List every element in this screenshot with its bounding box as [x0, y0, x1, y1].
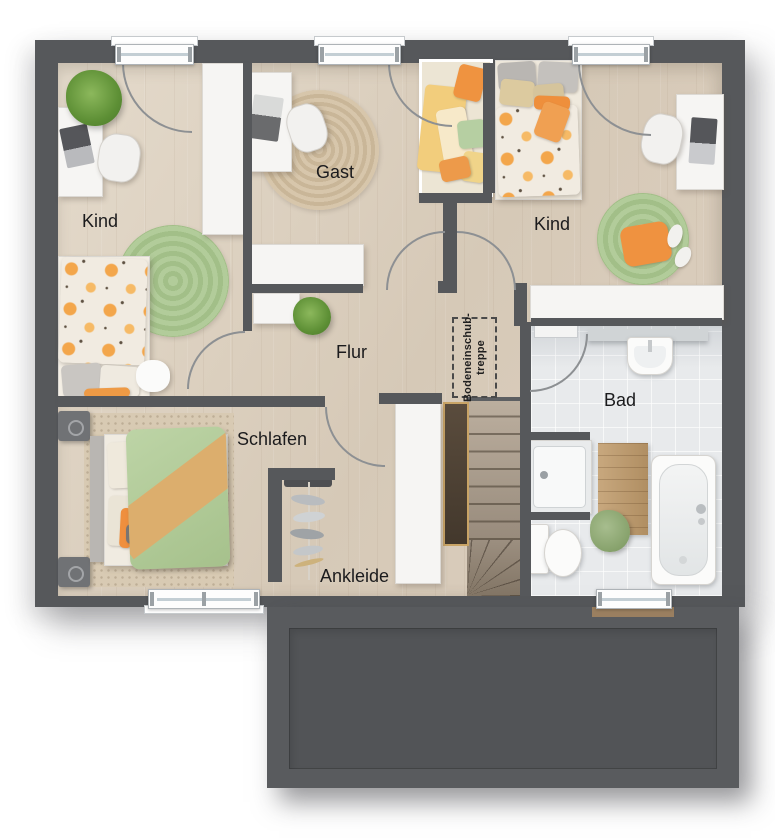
staircase-winders — [467, 540, 520, 596]
window — [318, 44, 401, 65]
room-label-kind-left: Kind — [82, 211, 118, 232]
toilet-bowl — [544, 529, 582, 577]
window — [148, 589, 260, 609]
floor-plan-canvas: Bodeneinschub- treppe — [0, 0, 775, 840]
attic-ladder-label-line1: Bodeneinschub- — [462, 313, 474, 402]
room-label-ankleide: Ankleide — [320, 566, 389, 587]
garage-roof — [267, 607, 739, 788]
plant — [66, 70, 122, 126]
garage-roof-panel — [289, 628, 717, 769]
wall — [483, 63, 495, 193]
wall — [419, 193, 492, 203]
towel — [590, 510, 630, 552]
wall — [248, 284, 363, 293]
room-label-gast: Gast — [316, 162, 354, 183]
nightstand — [58, 557, 90, 587]
window — [115, 44, 194, 65]
nightstand — [58, 411, 90, 441]
staircase-treads — [467, 400, 520, 540]
room-label-bad: Bad — [604, 390, 636, 411]
plant — [293, 297, 331, 335]
sideboard — [250, 244, 364, 286]
wall — [268, 468, 282, 582]
wall — [520, 432, 590, 440]
wardrobe — [202, 63, 245, 235]
laptop — [688, 117, 717, 165]
pillow — [499, 78, 536, 107]
room-label-flur: Flur — [336, 342, 367, 363]
attic-ladder-label-line2: treppe — [475, 340, 487, 375]
duvet — [58, 257, 148, 366]
wardrobe-column — [395, 403, 441, 584]
wall — [58, 396, 325, 407]
stairwell-void — [443, 402, 469, 546]
laptop — [248, 94, 284, 142]
shower — [527, 440, 592, 514]
bathtub — [651, 455, 716, 585]
floor-cushion — [619, 220, 673, 268]
room-label-schlafen: Schlafen — [237, 429, 307, 450]
wall — [520, 512, 590, 520]
wall — [379, 393, 442, 404]
wall — [268, 468, 335, 480]
wall — [531, 318, 722, 326]
sideboard — [530, 285, 724, 320]
bed-headboard — [90, 436, 104, 562]
window — [572, 44, 650, 65]
window — [596, 589, 672, 609]
attic-ladder-outline: Bodeneinschub- treppe — [452, 317, 497, 398]
duvet — [126, 426, 231, 569]
room-label-kind-right: Kind — [534, 214, 570, 235]
side-table — [136, 360, 170, 392]
sink — [627, 337, 673, 375]
wall — [443, 203, 457, 283]
